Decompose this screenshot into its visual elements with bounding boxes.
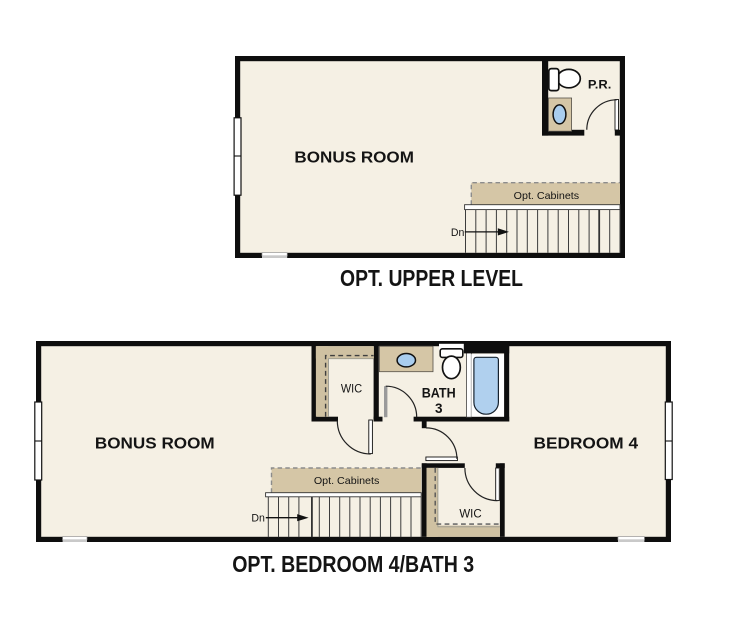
svg-text:OPT. BEDROOM 4/BATH 3: OPT. BEDROOM 4/BATH 3 [232, 551, 474, 577]
svg-text:WIC: WIC [459, 507, 481, 521]
svg-text:BATH: BATH [422, 385, 456, 400]
svg-text:Dn: Dn [251, 513, 265, 525]
svg-text:WIC: WIC [341, 382, 362, 396]
svg-text:P.R.: P.R. [588, 78, 612, 92]
svg-text:OPT. UPPER LEVEL: OPT. UPPER LEVEL [340, 265, 523, 291]
svg-text:3: 3 [435, 401, 443, 416]
svg-text:BONUS ROOM: BONUS ROOM [95, 436, 215, 453]
svg-text:BONUS ROOM: BONUS ROOM [294, 149, 414, 166]
svg-text:BEDROOM 4: BEDROOM 4 [534, 436, 639, 453]
svg-text:Opt. Cabinets: Opt. Cabinets [314, 475, 380, 487]
svg-text:Dn: Dn [451, 227, 465, 239]
svg-text:Opt. Cabinets: Opt. Cabinets [514, 190, 579, 202]
